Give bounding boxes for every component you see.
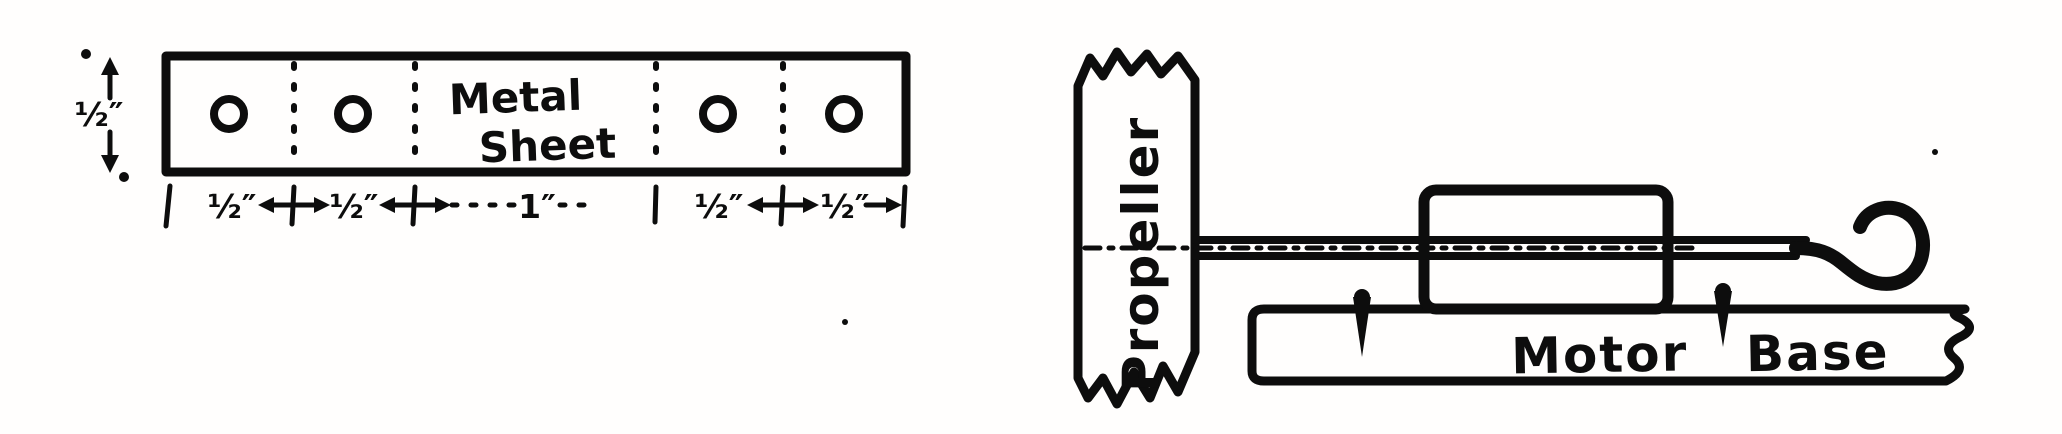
ink-speck (119, 172, 129, 182)
width-dimension-label: ½″ (75, 95, 124, 134)
arrow-right-icon (435, 197, 451, 213)
motor-base-label-word2: Base (1745, 323, 1890, 383)
dimension-label: ½″ (330, 187, 379, 226)
arrow-left-icon (258, 197, 274, 213)
width-dimension: ½″ (75, 57, 124, 173)
propeller-label: Propeller (1112, 116, 1170, 392)
arrow-left-icon (379, 197, 395, 213)
arrow-down-icon (101, 155, 119, 173)
propeller-assembly-diagram: Propeller Motor Base (1078, 52, 1970, 404)
dimension-label: 1″ (518, 187, 556, 226)
metal-sheet-label-line2: Sheet (478, 119, 617, 173)
drawing-canvas: Metal Sheet ½″ (0, 0, 2062, 434)
ink-speck (842, 319, 848, 325)
ink-speck (1932, 149, 1938, 155)
dimension-tick (903, 187, 905, 226)
dimension-label: ½″ (821, 187, 870, 226)
arrow-right-icon (803, 197, 819, 213)
ink-speck (81, 49, 91, 59)
motor-base-label-word1: Motor (1511, 324, 1689, 385)
metal-sheet-diagram: Metal Sheet ½″ (75, 49, 906, 325)
dimension-tick (166, 186, 170, 226)
arrow-right-icon (886, 197, 902, 213)
arrow-left-icon (747, 197, 763, 213)
dimension-label: ½″ (208, 187, 257, 226)
length-dimension-line: ½″ ½″ 1″ ½″ ½″ (166, 186, 905, 226)
arrow-up-icon (101, 57, 119, 75)
figure-page: Metal Sheet ½″ (0, 0, 2062, 434)
dimension-arrow (866, 197, 902, 213)
dimension-label: ½″ (695, 187, 744, 226)
shaft-hook (1796, 208, 1923, 284)
arrow-right-icon (314, 197, 330, 213)
metal-sheet-label-line1: Metal (448, 71, 583, 125)
dimension-tick (655, 187, 656, 222)
